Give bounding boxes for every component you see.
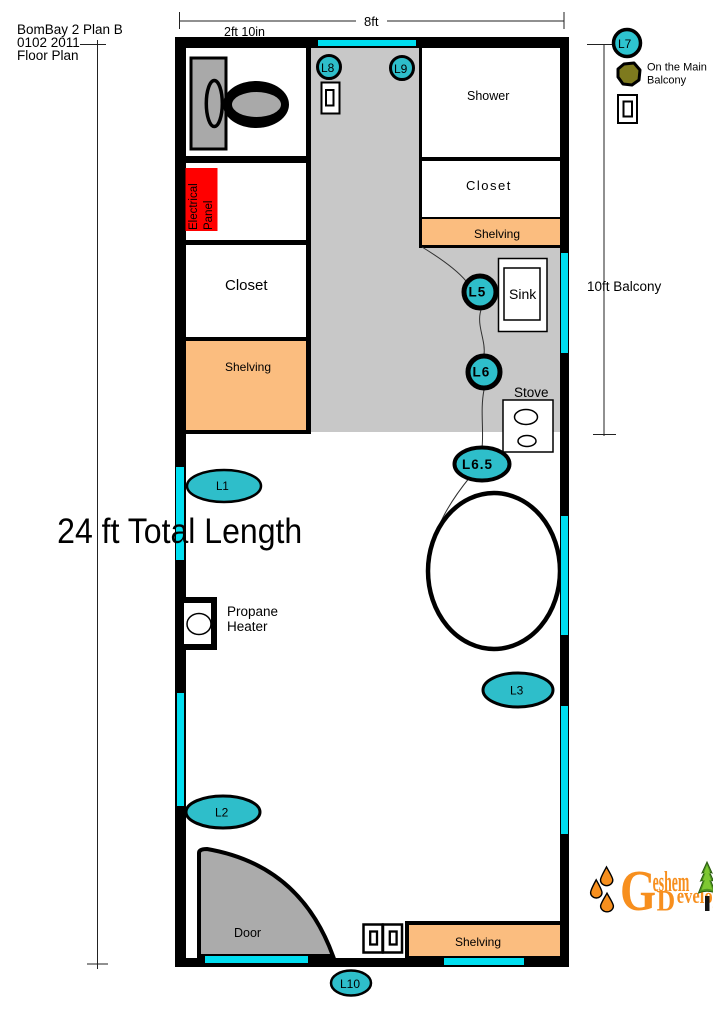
svg-text:L5: L5 (469, 285, 487, 300)
svg-text:Shelving: Shelving (455, 935, 501, 949)
svg-text:Panel: Panel (203, 201, 215, 230)
svg-text:D: D (657, 885, 676, 918)
svg-text:L8: L8 (321, 61, 335, 75)
svg-text:G: G (620, 859, 656, 923)
svg-text:Heater: Heater (227, 619, 268, 634)
svg-text:Door: Door (234, 926, 261, 940)
svg-text:24 ft Total Length: 24 ft Total Length (57, 513, 302, 552)
svg-text:Propane: Propane (227, 604, 278, 619)
svg-text:On the Main: On the Main (647, 62, 707, 74)
svg-text:Sink: Sink (509, 286, 537, 302)
svg-text:L6: L6 (473, 365, 491, 380)
svg-text:L10: L10 (340, 977, 360, 991)
svg-text:Closet: Closet (225, 277, 268, 294)
svg-text:8ft: 8ft (364, 14, 379, 29)
svg-text:Balcony: Balcony (647, 75, 687, 87)
svg-text:L7: L7 (618, 37, 632, 51)
svg-text:Shower: Shower (467, 89, 509, 103)
svg-text:L3: L3 (510, 684, 524, 698)
svg-text:10ft Balcony: 10ft Balcony (587, 279, 662, 294)
svg-text:Shelving: Shelving (474, 227, 520, 241)
svg-text:2ft 10in: 2ft 10in (224, 25, 265, 39)
svg-text:L1: L1 (216, 481, 229, 493)
svg-text:Electrical: Electrical (188, 183, 200, 230)
svg-text:Closet: Closet (466, 178, 512, 193)
svg-text:Stove: Stove (514, 385, 549, 400)
svg-text:L6.5: L6.5 (462, 457, 493, 472)
svg-text:Shelving: Shelving (225, 360, 271, 374)
svg-text:Floor Plan: Floor Plan (17, 48, 79, 63)
svg-text:L2: L2 (215, 806, 229, 820)
svg-text:L9: L9 (394, 62, 408, 76)
